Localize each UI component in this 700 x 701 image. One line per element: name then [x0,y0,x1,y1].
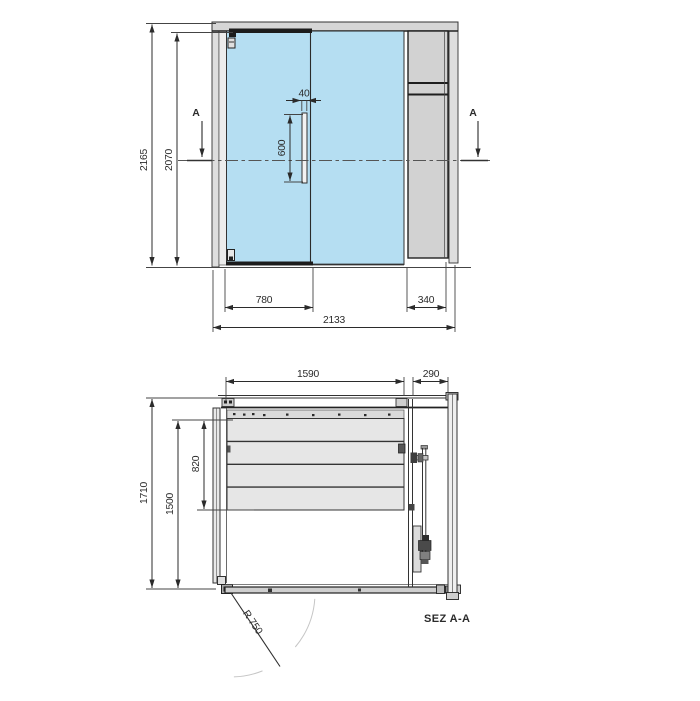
partition-fitting [409,504,415,511]
dim-overall-depth: 1710 [139,398,220,589]
glass-panel [227,32,405,266]
swing-arc [295,599,315,647]
right-frame-post [449,22,458,263]
technical-drawing: A A 2165 2070 40 [0,0,700,701]
dim-tech-compartment: 290 [413,369,448,396]
dim-text-r750: R 750 [240,609,264,637]
track-fitting [358,589,361,592]
left-wall-end-block [218,577,226,585]
right-wall-end-block [447,593,459,600]
section-letter-right: A [469,107,477,119]
door-swing: R 750 [231,593,315,677]
dim-text-2070: 2070 [164,148,175,171]
dim-text-1590: 1590 [297,369,320,380]
section-marker-right: A [461,107,488,161]
back-wall-corner-block-left [222,399,234,407]
dim-text-340: 340 [418,295,435,306]
elevation-view: A A 2165 2070 40 [139,22,490,332]
corner-block-screw [224,401,227,404]
side-panel [408,31,448,258]
swing-arc [234,671,263,677]
dim-text-290: 290 [423,369,440,380]
door-top-rail [229,29,312,34]
dim-text-820: 820 [191,455,202,472]
plan-view: R 750 SEZ A-A 1590 290 1710 [139,369,470,677]
front-track-profile [225,587,456,593]
dim-text-1500: 1500 [165,492,176,515]
door-bottom-rail [226,262,313,266]
front-corner-hardware [437,585,445,594]
drawing-canvas: A A 2165 2070 40 [0,0,700,701]
dim-text-1710: 1710 [139,481,150,504]
section-label: SEZ A-A [424,613,470,625]
dim-text-40: 40 [298,89,310,100]
bench-bracket-left [228,446,231,453]
door-top-rail-notch [229,33,236,37]
left-frame-post [212,22,219,267]
left-inner-post [219,31,227,265]
bottom-pivot-detail [229,257,233,261]
section-marker-left: A [187,107,212,161]
back-wall-corner-block-right [396,399,407,407]
dim-text-600: 600 [277,139,288,156]
dim-text-780: 780 [256,295,273,306]
top-pivot-hinge [228,38,235,48]
dim-text-2133: 2133 [323,315,346,326]
corner-block-screw [229,401,232,404]
bench-bracket-right [399,444,406,453]
section-letter-left: A [192,107,200,119]
dim-text-2165: 2165 [139,148,150,171]
dim-interior-width: 1590 [226,369,404,401]
door-handle-bar [302,113,307,183]
dim-interior-depth: 1500 [165,420,233,588]
dim-door-width: 780 [225,267,313,312]
dim-side-panel: 340 [407,262,446,312]
track-fitting [268,589,272,593]
